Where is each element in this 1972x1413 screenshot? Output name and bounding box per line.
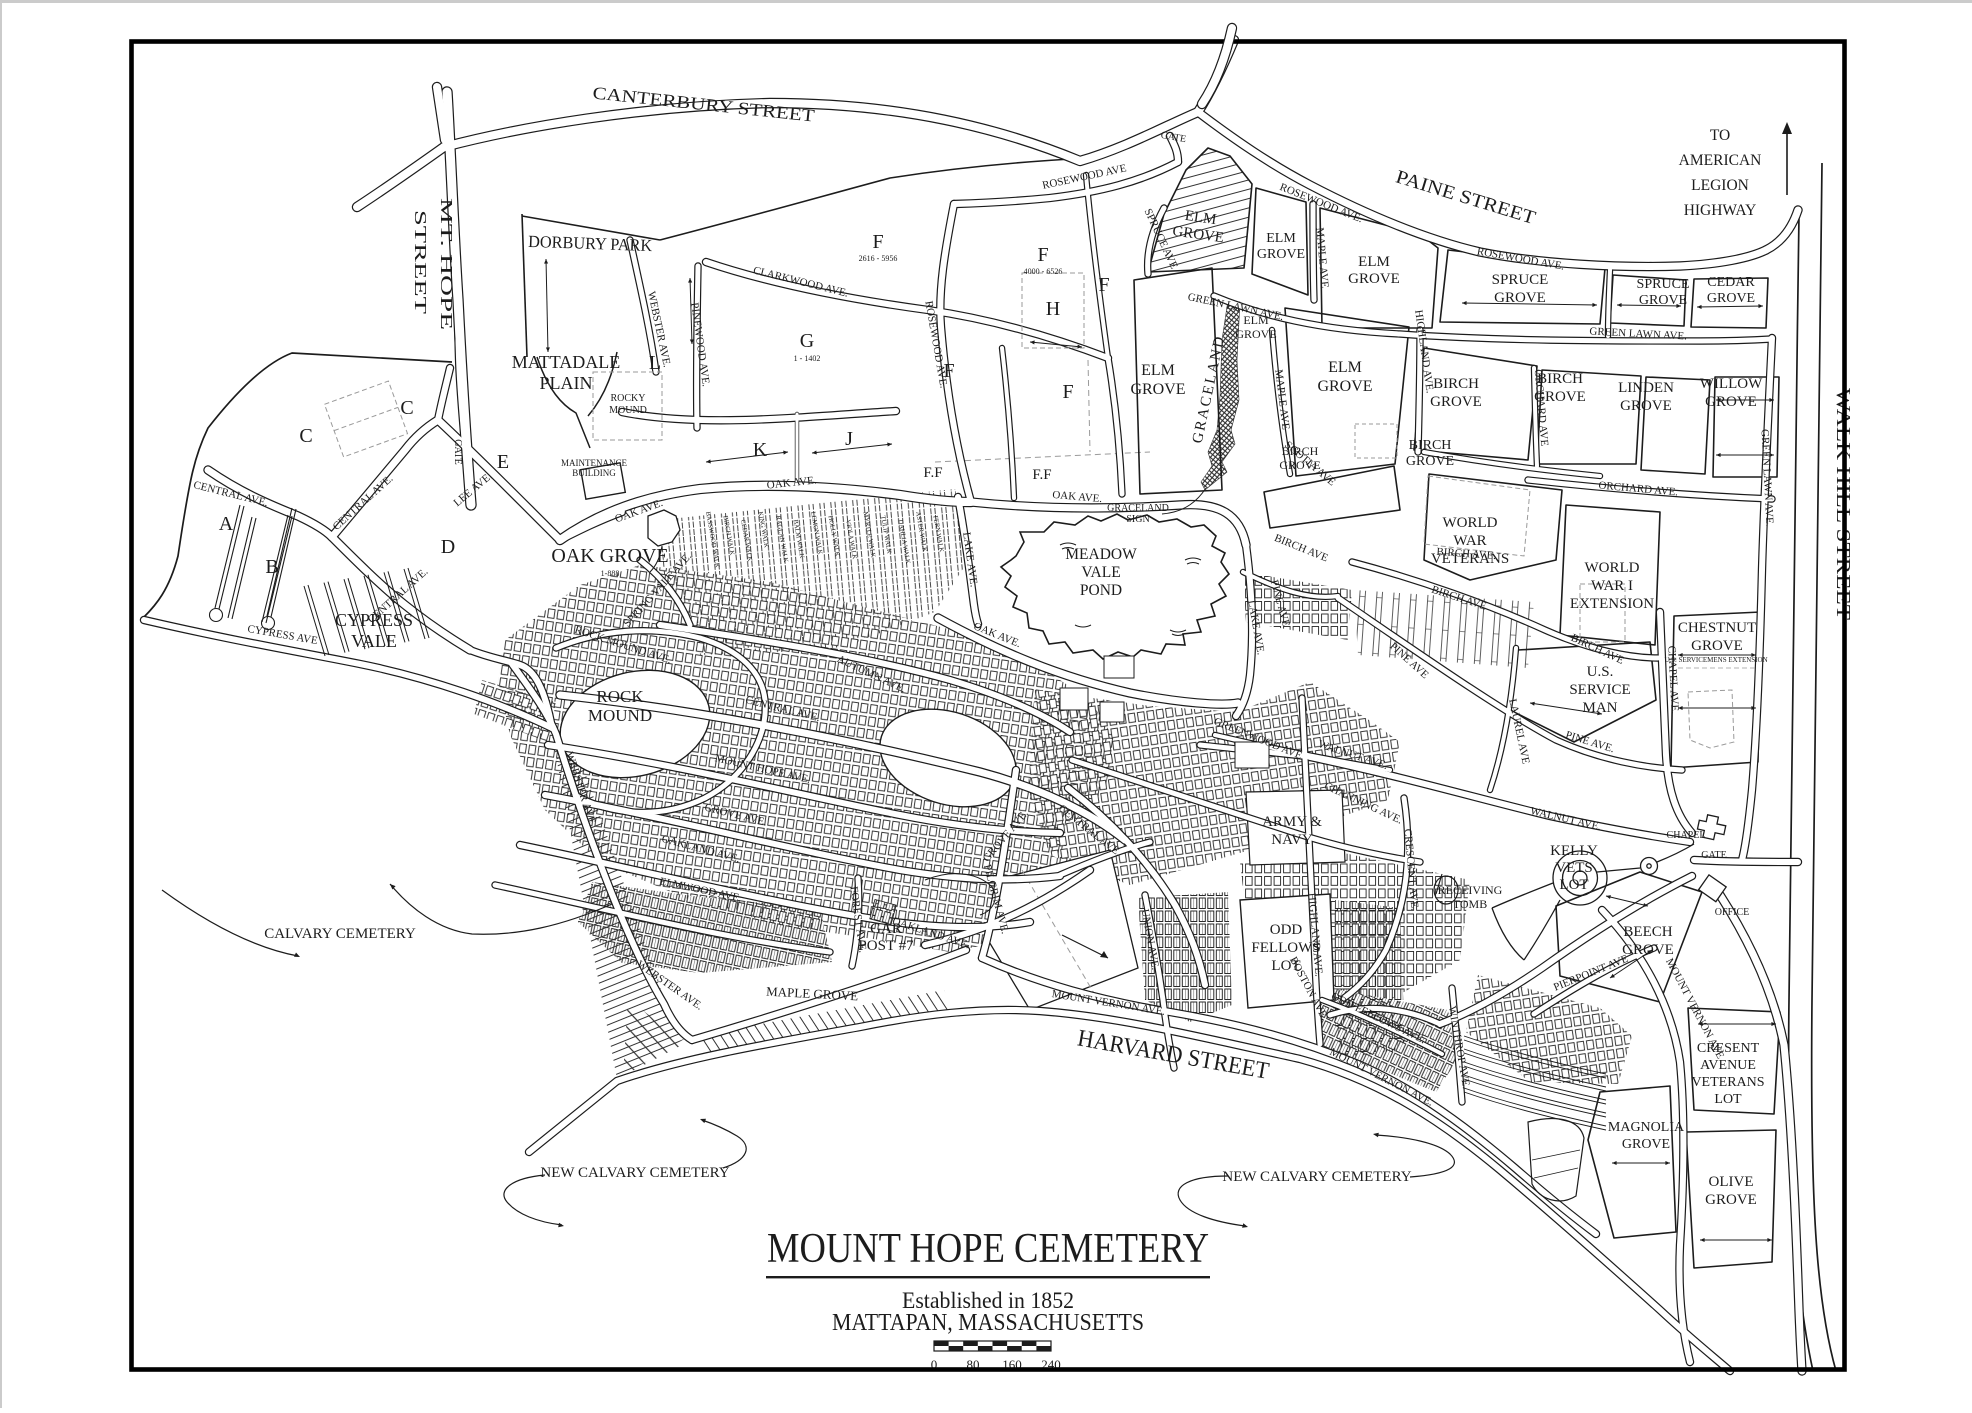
svg-text:MATTADALE: MATTADALE <box>512 352 621 372</box>
svg-text:A: A <box>219 513 234 535</box>
svg-text:2616 - 5956: 2616 - 5956 <box>859 254 898 263</box>
svg-text:GROVE: GROVE <box>1235 327 1276 341</box>
svg-text:AMERICAN: AMERICAN <box>1679 152 1762 169</box>
svg-text:GROVE: GROVE <box>1257 247 1305 262</box>
svg-text:GROVE: GROVE <box>1430 394 1482 410</box>
svg-text:KELLY: KELLY <box>1550 843 1598 859</box>
svg-text:LINDEN: LINDEN <box>1618 380 1674 396</box>
svg-text:RECEIVING: RECEIVING <box>1438 883 1503 897</box>
svg-text:NAVY: NAVY <box>1271 832 1313 848</box>
svg-text:OAK GROVE: OAK GROVE <box>551 545 668 567</box>
svg-text:GROVE: GROVE <box>1691 638 1743 654</box>
svg-text:GROVE: GROVE <box>1707 291 1755 306</box>
svg-text:MOUND: MOUND <box>588 706 652 725</box>
svg-text:ELM: ELM <box>1328 359 1362 376</box>
svg-text:WILLOW: WILLOW <box>1700 376 1763 392</box>
svg-text:NEW CALVARY CEMETERY: NEW CALVARY CEMETERY <box>1222 1169 1411 1185</box>
svg-text:VETERANS: VETERANS <box>1691 1075 1764 1090</box>
svg-text:EXTENSION: EXTENSION <box>1570 596 1654 612</box>
svg-text:B: B <box>265 556 278 578</box>
svg-text:VALE: VALE <box>1081 564 1120 581</box>
svg-text:U.S.: U.S. <box>1587 664 1614 680</box>
svg-text:1-888: 1-888 <box>601 569 620 578</box>
svg-text:F: F <box>1062 381 1073 403</box>
svg-text:ELM: ELM <box>1141 362 1175 379</box>
svg-text:CEDAR: CEDAR <box>1707 275 1755 290</box>
svg-text:GROVE: GROVE <box>1130 381 1185 398</box>
svg-text:H: H <box>1046 298 1060 320</box>
svg-text:GROVE: GROVE <box>1622 1137 1670 1152</box>
svg-text:U.S. SERVICEMENS EXTENSION: U.S. SERVICEMENS EXTENSION <box>1664 656 1767 664</box>
svg-text:ROCKY: ROCKY <box>610 393 645 404</box>
svg-text:TO: TO <box>1710 127 1730 144</box>
svg-text:LOT: LOT <box>1559 877 1588 893</box>
svg-text:SIGN: SIGN <box>1126 514 1149 525</box>
svg-text:SPRUCE: SPRUCE <box>1637 277 1690 292</box>
svg-text:1 - 1402: 1 - 1402 <box>794 354 821 363</box>
svg-text:TOMB: TOMB <box>1453 897 1487 911</box>
svg-text:GROVE: GROVE <box>1317 378 1372 395</box>
svg-text:J: J <box>845 428 853 450</box>
svg-text:K: K <box>753 439 768 461</box>
svg-text:GROVE: GROVE <box>1620 398 1672 414</box>
svg-text:WORLD: WORLD <box>1585 560 1640 576</box>
svg-text:F: F <box>1098 274 1109 296</box>
svg-text:CHAPEL: CHAPEL <box>1667 830 1706 841</box>
svg-text:BIRCH: BIRCH <box>1433 376 1479 392</box>
svg-text:F: F <box>1037 244 1048 266</box>
svg-text:PLAIN: PLAIN <box>540 373 593 393</box>
svg-text:MOUND: MOUND <box>609 405 647 416</box>
svg-text:CALVARY CEMETERY: CALVARY CEMETERY <box>264 926 416 942</box>
svg-text:GROVE: GROVE <box>1348 271 1400 287</box>
svg-text:OLIVE: OLIVE <box>1709 1174 1754 1190</box>
svg-text:GATE: GATE <box>452 439 463 465</box>
svg-text:WAR I: WAR I <box>1591 578 1633 594</box>
svg-text:MOUNT HOPE CEMETERY: MOUNT HOPE CEMETERY <box>767 1226 1209 1272</box>
svg-text:HIGHWAY: HIGHWAY <box>1684 202 1757 219</box>
svg-text:ELM: ELM <box>1358 254 1390 270</box>
svg-text:F.F: F.F <box>1032 467 1051 483</box>
svg-text:MATTAPAN, MASSACHUSETTS: MATTAPAN, MASSACHUSETTS <box>832 1310 1144 1336</box>
svg-text:BEECH: BEECH <box>1623 924 1672 940</box>
svg-text:MEADOW: MEADOW <box>1065 546 1137 563</box>
svg-text:C: C <box>299 425 312 447</box>
svg-text:ROCK: ROCK <box>596 687 644 706</box>
svg-text:NEW CALVARY CEMETERY: NEW CALVARY CEMETERY <box>540 1165 729 1181</box>
svg-text:CHESTNUT: CHESTNUT <box>1678 620 1756 636</box>
svg-text:BUILDING: BUILDING <box>572 468 616 478</box>
svg-text:OFFICE: OFFICE <box>1715 907 1749 918</box>
svg-text:AVENUE: AVENUE <box>1700 1058 1756 1073</box>
svg-text:ARMY &: ARMY & <box>1262 814 1322 830</box>
svg-text:LOT: LOT <box>1714 1092 1742 1107</box>
svg-text:BIRCH: BIRCH <box>1409 438 1452 453</box>
svg-text:SERVICE: SERVICE <box>1569 682 1630 698</box>
svg-text:MT. HOPE: MT. HOPE <box>437 198 456 330</box>
svg-text:WORLD: WORLD <box>1443 515 1498 531</box>
svg-text:STREET: STREET <box>411 210 430 315</box>
svg-text:VETS: VETS <box>1555 860 1593 876</box>
svg-text:C: C <box>400 397 413 419</box>
svg-text:GROVE: GROVE <box>1705 1192 1757 1208</box>
svg-text:E: E <box>497 451 509 473</box>
svg-text:GROVE: GROVE <box>1406 454 1454 469</box>
svg-text:VALE: VALE <box>351 631 397 651</box>
svg-text:MAGNOLIA: MAGNOLIA <box>1608 1120 1685 1135</box>
svg-text:G: G <box>800 330 814 352</box>
svg-text:4000 - 6526: 4000 - 6526 <box>1024 267 1063 276</box>
svg-text:LEGION: LEGION <box>1691 177 1749 194</box>
svg-text:F: F <box>872 231 883 253</box>
svg-text:MAINTENANCE: MAINTENANCE <box>561 458 627 468</box>
svg-text:D: D <box>441 536 455 558</box>
svg-text:ODD: ODD <box>1270 922 1303 938</box>
svg-text:POND: POND <box>1080 582 1122 599</box>
svg-text:GROVE: GROVE <box>1705 394 1757 410</box>
svg-text:GATE: GATE <box>1701 850 1727 861</box>
svg-text:ELM: ELM <box>1266 231 1296 246</box>
svg-text:GRACELAND: GRACELAND <box>1107 503 1169 514</box>
svg-text:F.F: F.F <box>923 465 942 481</box>
svg-text:GROVE: GROVE <box>1622 942 1674 958</box>
svg-text:SPRUCE: SPRUCE <box>1492 272 1549 288</box>
